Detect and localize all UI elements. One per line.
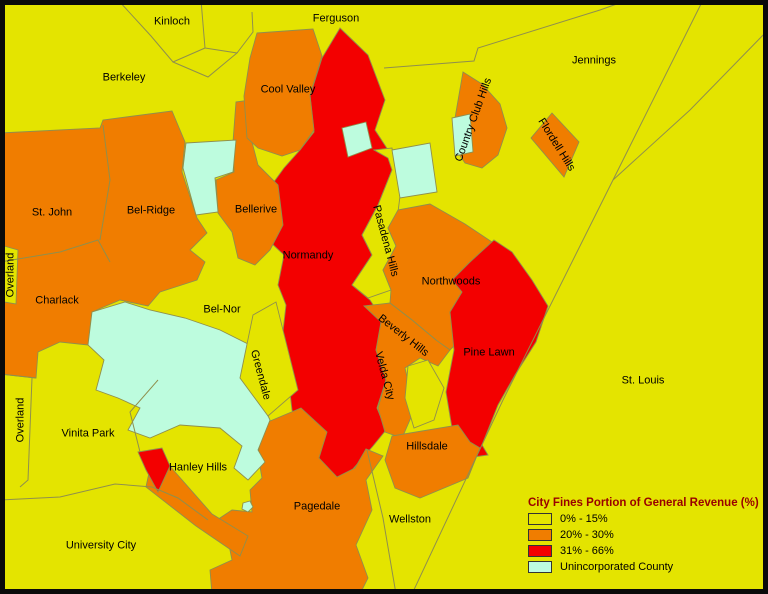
legend-title: City Fines Portion of General Revenue (%… <box>528 497 764 509</box>
region-unincorporated-country-club <box>452 114 473 156</box>
legend-swatch-unincorporated <box>528 561 552 573</box>
legend-item-mid: 20% - 30% <box>528 529 764 541</box>
legend-label-mid: 20% - 30% <box>560 529 614 541</box>
legend-label-low: 0% - 15% <box>560 513 608 525</box>
legend-item-unincorporated: Unincorporated County <box>528 561 764 573</box>
municipal-fines-map: KinlochFergusonBerkeleyCool ValleyJennin… <box>0 0 768 594</box>
legend-swatch-high <box>528 545 552 557</box>
legend-label-unincorporated: Unincorporated County <box>560 561 673 573</box>
legend-item-low: 0% - 15% <box>528 513 764 525</box>
region-overland-strip <box>4 246 18 304</box>
region-unincorporated-pasadena <box>392 143 437 198</box>
legend: City Fines Portion of General Revenue (%… <box>528 497 764 573</box>
legend-swatch-low <box>528 513 552 525</box>
legend-swatch-mid <box>528 529 552 541</box>
legend-rows: 0% - 15%20% - 30%31% - 66%Unincorporated… <box>528 513 764 573</box>
legend-label-high: 31% - 66% <box>560 545 614 557</box>
legend-item-high: 31% - 66% <box>528 545 764 557</box>
